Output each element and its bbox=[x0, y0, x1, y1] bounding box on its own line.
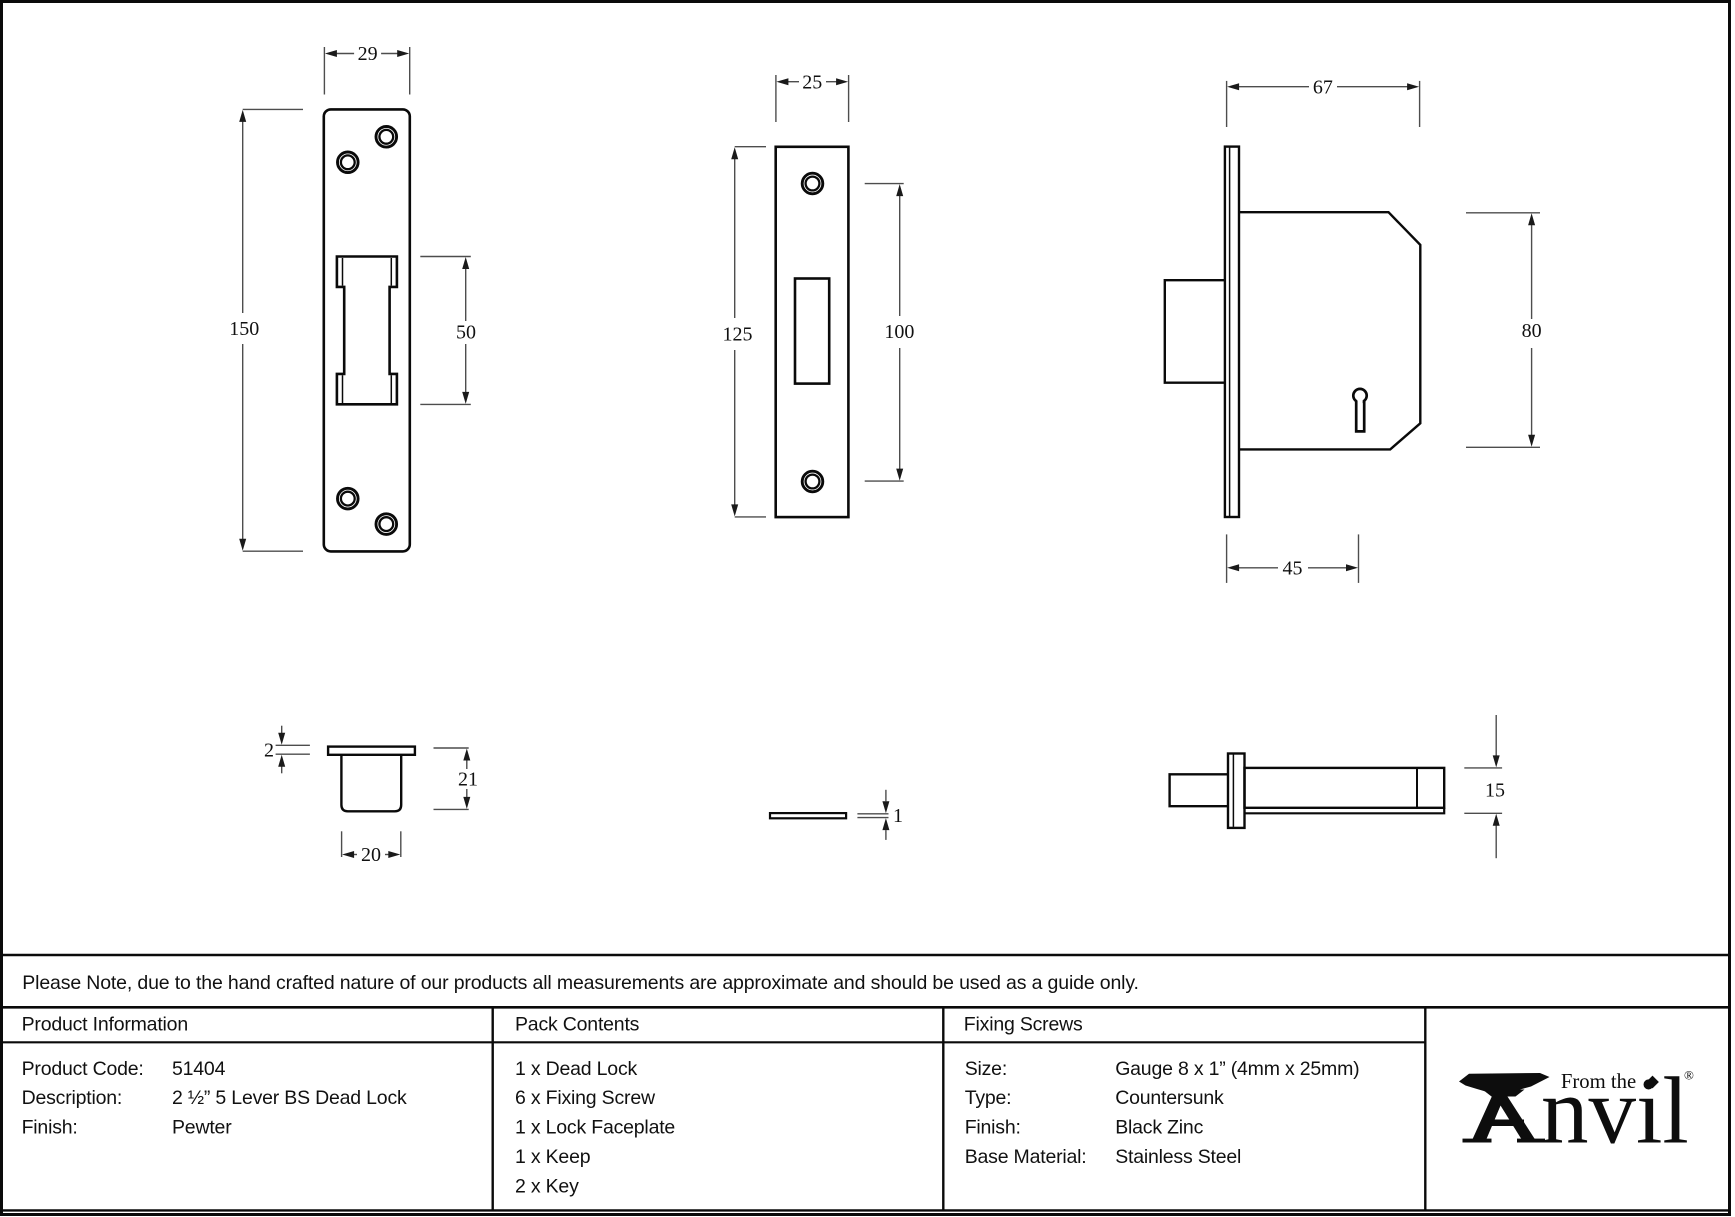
svg-text:15: 15 bbox=[1485, 780, 1505, 802]
svg-text:Please Note, due to the hand c: Please Note, due to the hand crafted nat… bbox=[22, 972, 1139, 994]
svg-text:Pack Contents: Pack Contents bbox=[515, 1014, 640, 1036]
svg-text:67: 67 bbox=[1313, 76, 1333, 98]
svg-text:Size:: Size: bbox=[965, 1058, 1007, 1080]
svg-text:Description:: Description: bbox=[22, 1087, 123, 1109]
svg-text:45: 45 bbox=[1283, 557, 1303, 579]
svg-text:80: 80 bbox=[1522, 320, 1542, 342]
svg-text:1 x Lock Faceplate: 1 x Lock Faceplate bbox=[515, 1117, 675, 1139]
svg-text:125: 125 bbox=[723, 324, 753, 346]
svg-text:Finish:: Finish: bbox=[965, 1117, 1021, 1139]
svg-text:1 x Keep: 1 x Keep bbox=[515, 1146, 591, 1168]
svg-text:2 x Key: 2 x Key bbox=[515, 1175, 579, 1197]
svg-text:Product Information: Product Information bbox=[22, 1014, 188, 1036]
svg-text:Type:: Type: bbox=[965, 1087, 1012, 1109]
svg-text:1: 1 bbox=[893, 805, 903, 827]
svg-text:50: 50 bbox=[456, 322, 476, 344]
svg-text:100: 100 bbox=[884, 321, 914, 343]
svg-text:2 ½” 5 Lever BS Dead Lock: 2 ½” 5 Lever BS Dead Lock bbox=[172, 1087, 407, 1109]
svg-text:Stainless Steel: Stainless Steel bbox=[1115, 1146, 1241, 1168]
svg-text:Countersunk: Countersunk bbox=[1115, 1087, 1224, 1109]
svg-text:6 x Fixing Screw: 6 x Fixing Screw bbox=[515, 1087, 656, 1109]
svg-text:29: 29 bbox=[358, 43, 378, 65]
svg-text:Pewter: Pewter bbox=[172, 1117, 232, 1139]
svg-text:51404: 51404 bbox=[172, 1058, 226, 1080]
svg-text:1 x Dead Lock: 1 x Dead Lock bbox=[515, 1058, 638, 1080]
svg-text:nvil: nvil bbox=[1541, 1058, 1689, 1164]
svg-text:20: 20 bbox=[361, 844, 381, 866]
svg-text:150: 150 bbox=[229, 318, 259, 340]
svg-text:2: 2 bbox=[264, 740, 274, 762]
svg-text:Finish:: Finish: bbox=[22, 1117, 78, 1139]
svg-text:Base Material:: Base Material: bbox=[965, 1146, 1087, 1168]
svg-text:25: 25 bbox=[802, 71, 822, 93]
svg-text:Black Zinc: Black Zinc bbox=[1115, 1117, 1203, 1139]
svg-text:Fixing Screws: Fixing Screws bbox=[964, 1014, 1083, 1036]
svg-text:®: ® bbox=[1684, 1068, 1694, 1083]
svg-text:21: 21 bbox=[458, 769, 478, 791]
svg-text:Product Code:: Product Code: bbox=[22, 1058, 144, 1080]
svg-text:Gauge 8 x 1” (4mm x 25mm): Gauge 8 x 1” (4mm x 25mm) bbox=[1115, 1058, 1359, 1080]
